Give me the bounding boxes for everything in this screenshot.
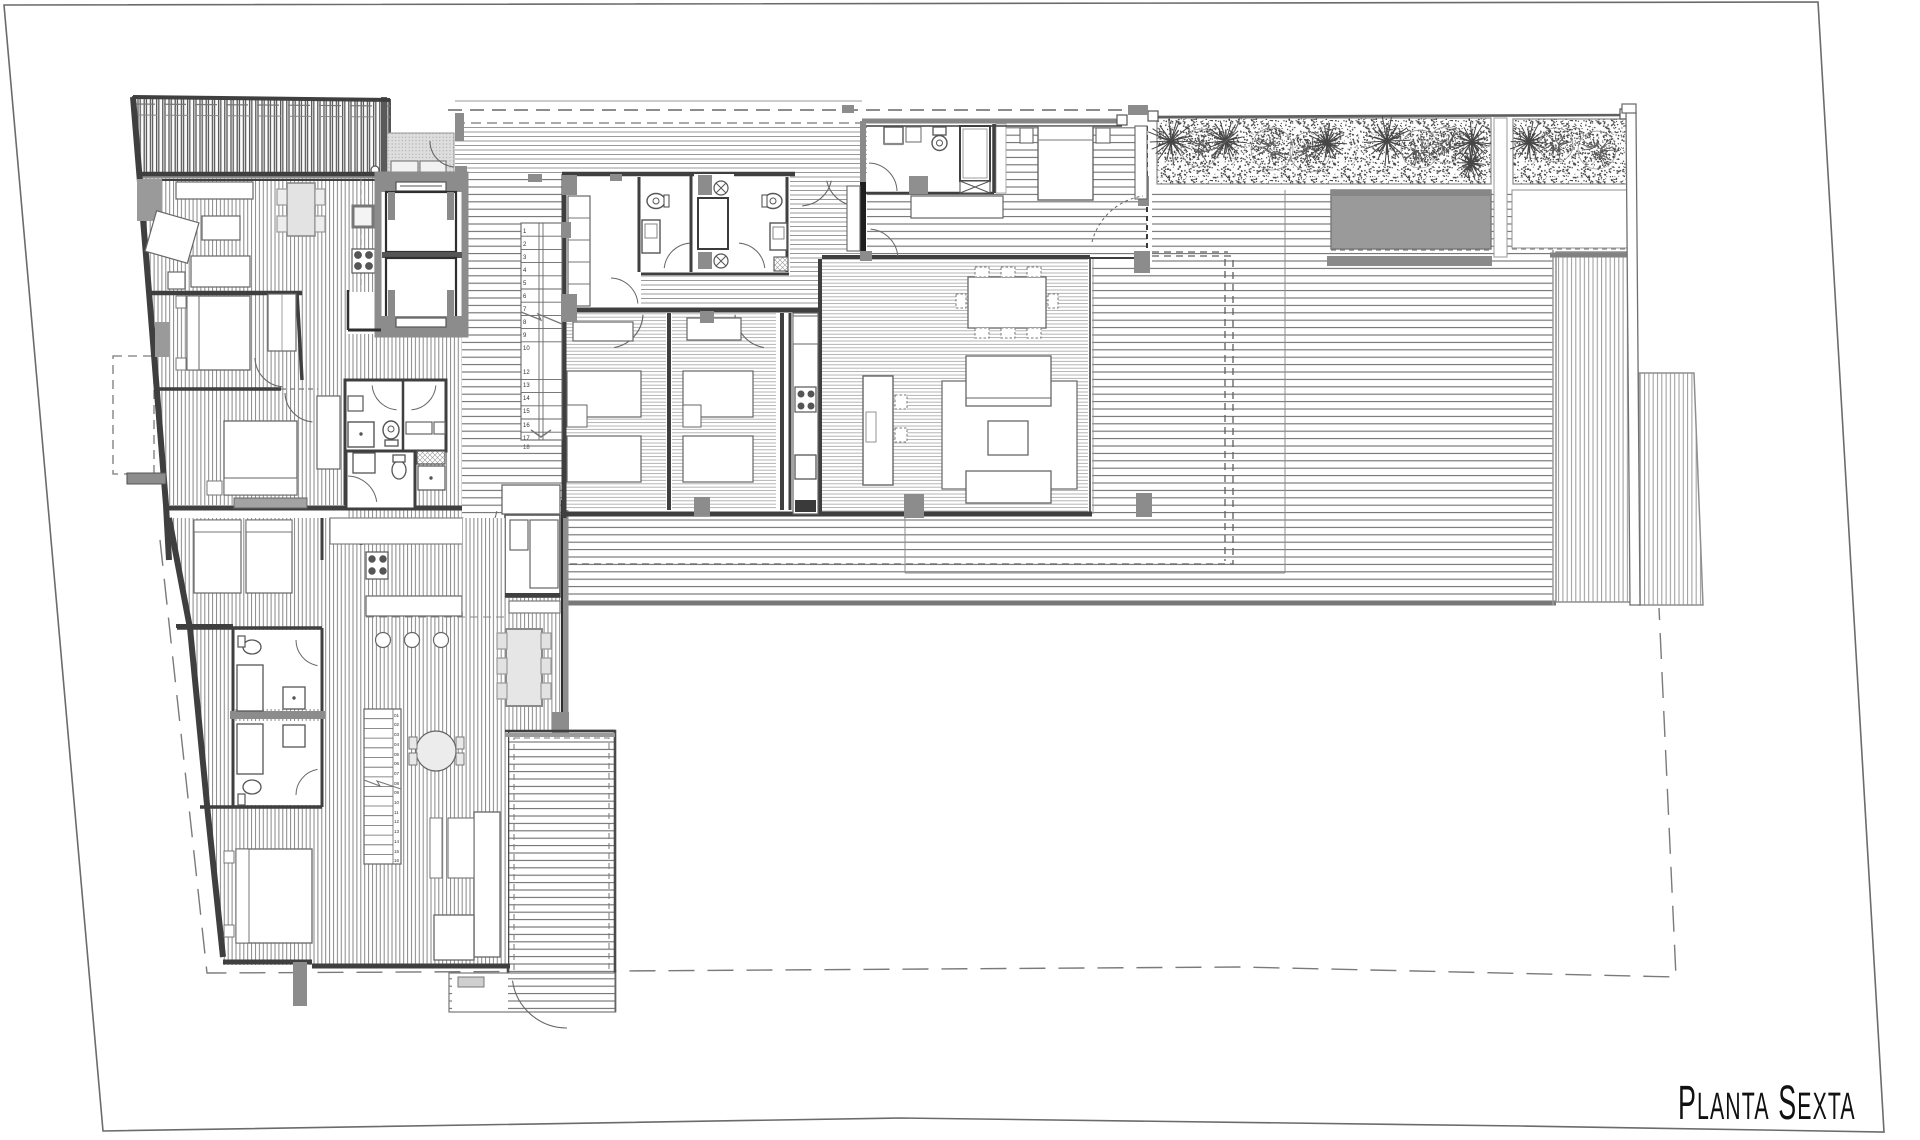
svg-text:09: 09 [394,790,400,795]
svg-text:10: 10 [394,800,400,805]
svg-text:01: 01 [394,713,400,718]
svg-text:15: 15 [523,409,530,415]
svg-text:04: 04 [394,742,400,747]
svg-text:10: 10 [523,346,530,352]
svg-text:06: 06 [394,761,400,766]
svg-text:16: 16 [523,423,530,429]
svg-text:13: 13 [523,383,530,389]
svg-text:02: 02 [394,722,400,727]
svg-text:PLANTA SEXTA: PLANTA SEXTA [1678,1077,1856,1130]
svg-text:16: 16 [394,858,400,863]
svg-text:11: 11 [394,810,399,815]
svg-text:15: 15 [394,849,400,854]
svg-text:12: 12 [523,370,530,376]
svg-text:05: 05 [394,752,400,757]
svg-text:12: 12 [394,819,400,824]
svg-text:14: 14 [394,839,400,844]
svg-text:14: 14 [523,396,530,402]
svg-text:17: 17 [523,436,530,442]
svg-text:13: 13 [394,829,400,834]
svg-text:07: 07 [394,771,400,776]
svg-text:18: 18 [523,445,530,451]
svg-text:08: 08 [394,781,400,786]
svg-text:03: 03 [394,732,400,737]
